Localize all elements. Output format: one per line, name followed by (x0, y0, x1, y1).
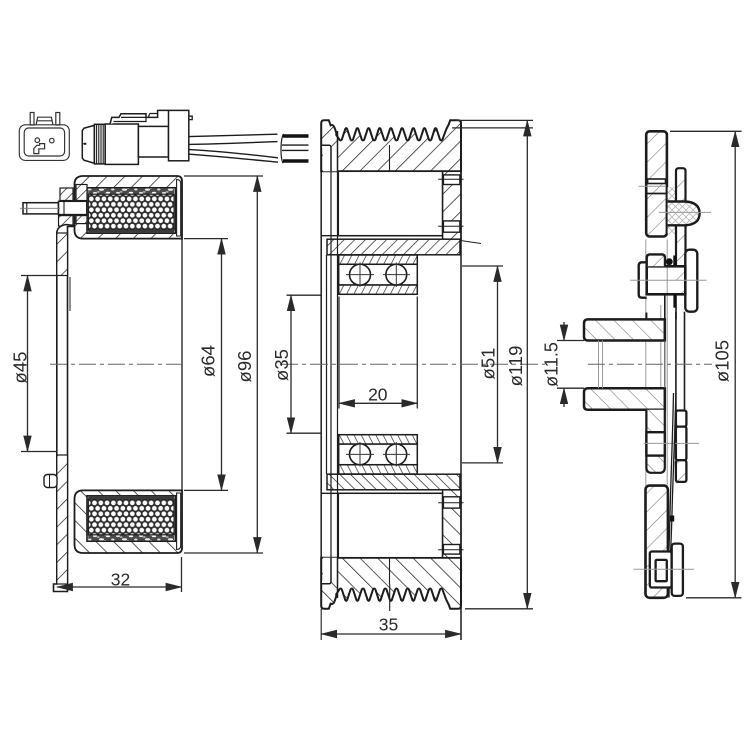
svg-text:ø64: ø64 (197, 345, 218, 377)
svg-text:32: 32 (111, 569, 130, 589)
svg-text:35: 35 (379, 615, 398, 635)
svg-text:ø105: ø105 (711, 340, 732, 382)
svg-text:ø35: ø35 (271, 349, 292, 381)
svg-text:ø119: ø119 (505, 346, 526, 387)
svg-text:20: 20 (368, 385, 388, 405)
svg-text:ø51: ø51 (477, 348, 498, 380)
svg-text:ø45: ø45 (9, 352, 30, 384)
svg-text:ø11.5: ø11.5 (541, 342, 561, 387)
svg-text:ø96: ø96 (234, 351, 255, 383)
